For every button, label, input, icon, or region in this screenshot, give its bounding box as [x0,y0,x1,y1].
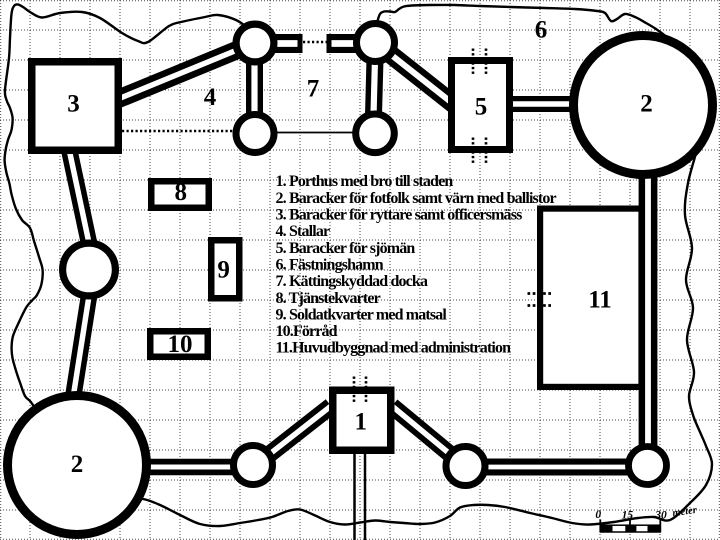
svg-text:10: 10 [168,331,193,358]
svg-text:9. Soldatkvarter med matsal: 9. Soldatkvarter med matsal [276,306,448,323]
svg-text:9: 9 [217,257,230,284]
svg-text:3: 3 [67,90,80,117]
svg-text:11: 11 [588,286,612,313]
svg-text:1. Porthus med bro till staden: 1. Porthus med bro till staden [276,173,454,190]
svg-text:10.Förråd: 10.Förråd [276,323,338,340]
svg-text:0: 0 [595,509,601,521]
svg-text:7: 7 [307,75,320,102]
svg-text:6. Fästningshamn: 6. Fästningshamn [276,256,384,273]
svg-text:3. Baracker för ryttare samt o: 3. Baracker för ryttare samt officersmäs… [276,207,523,224]
svg-text:2: 2 [71,451,84,478]
svg-text:4. Stallar: 4. Stallar [276,223,330,240]
svg-text:2. Baracker för fotfolk samt v: 2. Baracker för fotfolk samt värn med ba… [276,190,557,207]
svg-text:2: 2 [640,90,653,117]
svg-text:1: 1 [355,408,368,435]
svg-text:7. Kättingskyddad docka: 7. Kättingskyddad docka [276,273,428,290]
svg-text:4: 4 [204,84,217,111]
svg-text:8: 8 [174,179,187,206]
svg-text:5: 5 [475,93,488,120]
svg-text:11.Huvudbyggnad med administra: 11.Huvudbyggnad med administration [276,340,512,357]
svg-text:6: 6 [535,16,548,43]
svg-text:30: 30 [654,510,667,522]
svg-text:5. Baracker för sjömän: 5. Baracker för sjömän [276,240,416,257]
svg-text:15: 15 [622,510,634,522]
svg-text:8. Tjänstekvarter: 8. Tjänstekvarter [276,290,381,307]
